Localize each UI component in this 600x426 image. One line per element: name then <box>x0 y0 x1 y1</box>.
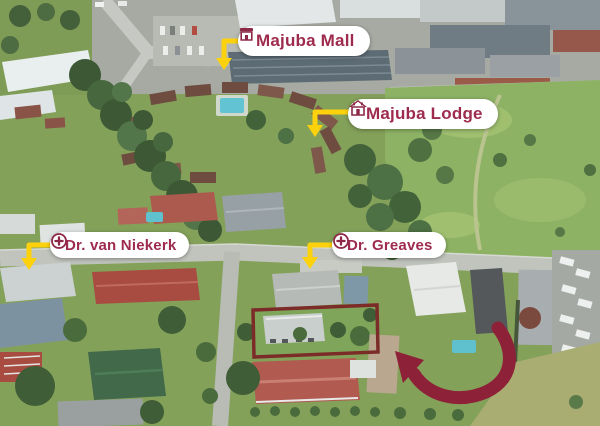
property-highlight-arrow <box>395 328 509 398</box>
dr-greaves-label-text: Dr. Greaves <box>347 237 433 254</box>
annotated-aerial-photo: Majuba Mall Majuba Lodge Dr. van Niekerk <box>0 0 600 426</box>
dr-van-niekerk-label-text: Dr. van Niekerk <box>65 237 176 254</box>
dr-van-niekerk-pointer-arrow <box>29 245 52 259</box>
majuba-mall-label: Majuba Mall <box>238 26 370 56</box>
majuba-lodge-label-text: Majuba Lodge <box>366 104 483 124</box>
dr-greaves-arrowhead-icon <box>302 257 318 269</box>
dr-van-niekerk-label: Dr. van Niekerk <box>50 232 189 258</box>
majuba-lodge-label: Majuba Lodge <box>348 99 498 129</box>
majuba-mall-label-text: Majuba Mall <box>256 31 355 51</box>
majuba-mall-arrowhead-icon <box>216 58 232 70</box>
dr-van-niekerk-arrowhead-icon <box>21 258 37 270</box>
majuba-lodge-arrowhead-icon <box>307 125 323 137</box>
annotation-overlay <box>0 0 600 426</box>
dr-greaves-pointer-arrow <box>310 245 334 258</box>
dr-greaves-label: Dr. Greaves <box>332 232 446 258</box>
majuba-lodge-pointer-arrow <box>315 112 350 126</box>
property-boundary-rectangle <box>253 305 378 357</box>
